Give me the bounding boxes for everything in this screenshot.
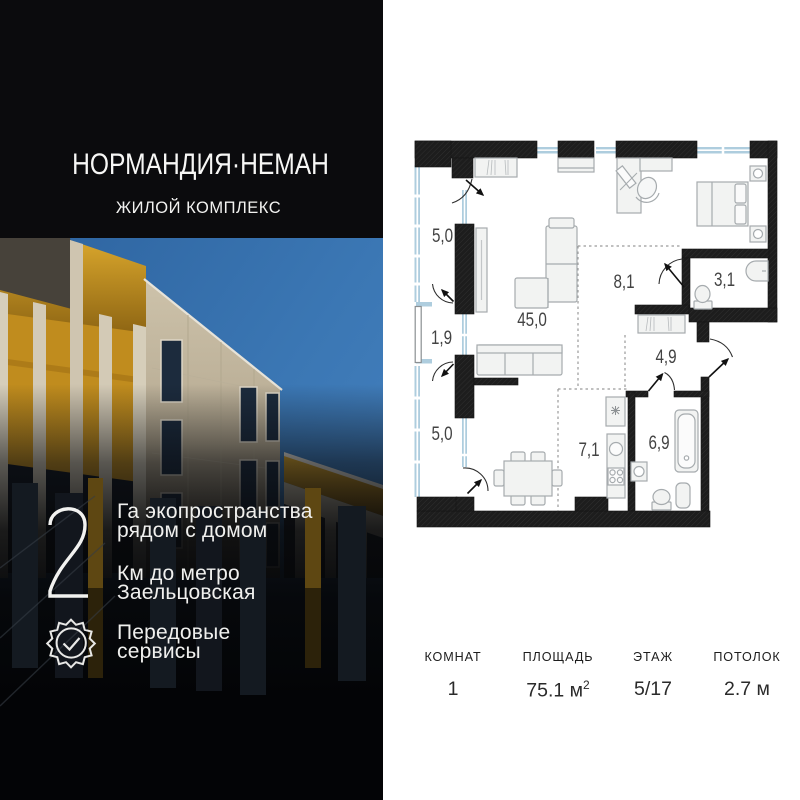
svg-text:5,0: 5,0 bbox=[432, 224, 453, 246]
svg-text:7,1: 7,1 bbox=[578, 438, 599, 460]
svg-text:6,9: 6,9 bbox=[648, 431, 669, 453]
svg-text:1,9: 1,9 bbox=[431, 326, 452, 348]
svg-text:3,1: 3,1 bbox=[714, 268, 735, 290]
svg-text:8,1: 8,1 bbox=[613, 270, 634, 292]
svg-text:4,9: 4,9 bbox=[655, 345, 676, 367]
svg-text:45,0: 45,0 bbox=[517, 308, 547, 330]
svg-text:5,0: 5,0 bbox=[431, 422, 452, 444]
